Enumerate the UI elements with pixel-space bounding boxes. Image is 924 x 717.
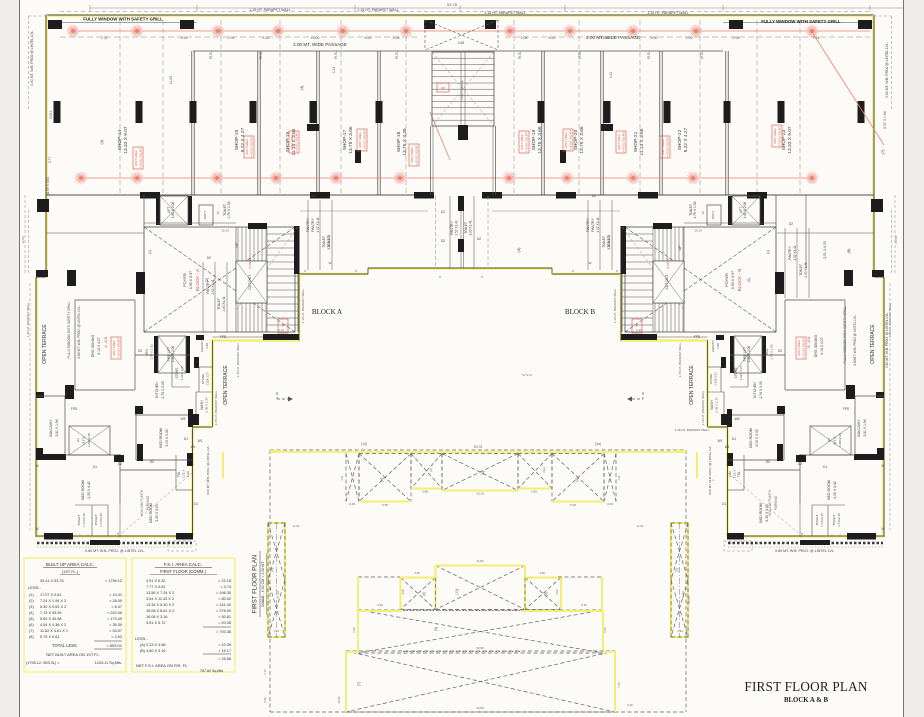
svg-text:OPEN TERRACE: OPEN TERRACE (689, 365, 695, 405)
svg-text:7.15: 7.15 (617, 682, 621, 688)
svg-text:1.60 X 2.06: 1.60 X 2.06 (747, 346, 751, 363)
svg-text:UNIT AREA: UNIT AREA (617, 134, 621, 150)
svg-text:1.79 X 1.52: 1.79 X 1.52 (693, 201, 697, 218)
svg-text:5.79 X 0.61: 5.79 X 0.61 (40, 635, 59, 639)
svg-text:FIRST FLOOR (COMM.): FIRST FLOOR (COMM.) (160, 569, 207, 574)
svg-text:= 6.47: = 6.47 (111, 605, 122, 609)
svg-text:= 4.74: = 4.74 (220, 585, 231, 589)
svg-text:1.15 HT. PARAPET WALL: 1.15 HT. PARAPET WALL (675, 428, 710, 432)
svg-text:1.11: 1.11 (609, 72, 613, 78)
svg-text:11.63: 11.63 (169, 76, 173, 84)
svg-text:10.19: 10.19 (221, 229, 229, 233)
svg-text:LIGHT SPACE: LIGHT SPACE (460, 80, 464, 100)
svg-text:OPEN TERRACE: OPEN TERRACE (223, 365, 229, 405)
svg-text:7.24: 7.24 (101, 36, 108, 40)
svg-text:2.74 X 3.35: 2.74 X 3.35 (161, 381, 165, 398)
svg-text:[7]: [7] (357, 682, 361, 686)
svg-text:13.04: 13.04 (21, 236, 25, 244)
svg-text:3.35 X 4.53: 3.35 X 4.53 (155, 504, 159, 521)
svg-text:V: V (439, 275, 441, 279)
svg-text:BLOCK A: BLOCK A (312, 308, 342, 316)
svg-text:= 10.41: = 10.41 (109, 593, 122, 597)
svg-text:BED ROOM: BED ROOM (749, 428, 753, 448)
svg-text:D2: D2 (118, 462, 122, 466)
svg-text:FPD: FPD (71, 407, 78, 411)
svg-text:W: W (35, 527, 38, 531)
svg-text:TOILET: TOILET (799, 264, 803, 276)
svg-text:= 93.02 SQ.MT: = 93.02 SQ.MT (621, 132, 625, 153)
svg-text:PANTRY: PANTRY (591, 218, 595, 232)
svg-text:1.22 X: 1.22 X (733, 470, 737, 479)
svg-text:F.S.I. AREA CALC.: F.S.I. AREA CALC. (164, 562, 203, 567)
svg-text:7.24 X 1.94 X 2: 7.24 X 1.94 X 2 (40, 599, 66, 603)
svg-text:TOTAL LESS: TOTAL LESS (52, 643, 77, 648)
svg-text:4.38: 4.38 (414, 571, 420, 575)
svg-text:53.78: 53.78 (447, 2, 458, 7)
svg-text:3.05 X 3.35: 3.05 X 3.35 (165, 429, 169, 446)
svg-text:2.13: 2.13 (278, 328, 284, 332)
svg-text:[9]: [9] (675, 568, 679, 572)
svg-text:9.30: 9.30 (263, 697, 267, 703)
svg-text:A -101: A -101 (103, 335, 108, 347)
svg-text:TOI.: TOI. (177, 471, 181, 477)
svg-text:[5]: [5] (481, 471, 485, 475)
svg-text:D1: D1 (722, 502, 726, 506)
svg-text:(1ST FL.): (1ST FL.) (62, 570, 79, 574)
svg-text:HOLLOW PLINTH: HOLLOW PLINTH (768, 489, 772, 516)
svg-text:D2: D2 (789, 222, 793, 226)
svg-text:1.11: 1.11 (332, 67, 336, 73)
svg-text:= 53.57: = 53.57 (109, 629, 122, 633)
svg-text:TOILET: TOILET (607, 236, 611, 248)
svg-text:BALCONY: BALCONY (857, 419, 861, 437)
svg-text:1.15 HT. PARAPET WALL: 1.15 HT. PARAPET WALL (678, 342, 682, 377)
svg-text:(3): (3) (99, 139, 104, 145)
svg-text:3.51 X 4.05: 3.51 X 4.05 (823, 241, 827, 258)
svg-text:O.T.S.: O.T.S. (82, 435, 86, 444)
svg-text:1.15 HT. PARAPET WALL: 1.15 HT. PARAPET WALL (236, 342, 240, 377)
svg-text:= 50.81: = 50.81 (218, 615, 231, 619)
svg-text:= 1796.12: = 1796.12 (105, 579, 122, 583)
svg-text:1.71X2.15: 1.71X2.15 (99, 513, 103, 527)
svg-text:PANTRY: PANTRY (306, 218, 310, 232)
svg-text:1.52 X1.41: 1.52 X1.41 (316, 217, 320, 233)
svg-text:11.62: 11.62 (637, 524, 644, 528)
svg-text:= 553.01: = 553.01 (106, 643, 122, 648)
svg-text:2.02: 2.02 (186, 471, 190, 477)
svg-text:1.15 HT. PARAPET WALL: 1.15 HT. PARAPET WALL (301, 288, 305, 323)
svg-text:SCALE : 1.00 CM = 2.00 MT.: SCALE : 1.00 CM = 2.00 MT. (261, 561, 265, 607)
svg-text:1.60: 1.60 (205, 343, 209, 349)
svg-text:1.52 X1.41: 1.52 X1.41 (211, 279, 215, 295)
svg-text:UNIT AREA: UNIT AREA (245, 139, 249, 155)
svg-text:[2]: [2] (270, 568, 274, 572)
svg-text:STORE: STORE (734, 368, 738, 379)
svg-text:(2): (2) (29, 599, 34, 603)
svg-text:BLOCK - B: BLOCK - B (737, 269, 742, 292)
svg-text:0.60 MT. W.B. PROJ. @ LINTEL: 0.60 MT. W.B. PROJ. @ LINTEL LVL. (85, 549, 145, 553)
svg-text:D2: D2 (441, 210, 445, 214)
svg-text:= 93.02 SQ.MT: = 93.02 SQ.MT (524, 132, 528, 153)
svg-text:UP: UP (678, 245, 682, 251)
svg-text:5.30: 5.30 (377, 603, 383, 607)
svg-text:1.94: 1.94 (677, 629, 683, 633)
svg-text:V: V (304, 269, 306, 273)
svg-text:3.89: 3.89 (531, 490, 537, 494)
svg-text:4.55: 4.55 (458, 41, 465, 45)
svg-text:(8): (8) (29, 635, 34, 639)
svg-text:5.30: 5.30 (651, 36, 658, 40)
svg-text:0.60 MT. W.B. PROJ. @ LINTEL L: 0.60 MT. W.B. PROJ. @ LINTEL LVL. (885, 312, 889, 368)
svg-text:15.39: 15.39 (601, 36, 610, 40)
svg-text:UNIT AREA: UNIT AREA (520, 134, 524, 150)
svg-text:1.68X2.48: 1.68X2.48 (838, 433, 842, 447)
svg-text:0.80 MT. W.B. PROJ. @ LINTEL: 0.80 MT. W.B. PROJ. @ LINTEL LVL. (775, 549, 835, 553)
svg-text:1243.11 Sq.Mts.: 1243.11 Sq.Mts. (95, 661, 122, 665)
svg-text:(1.36): (1.36) (349, 502, 356, 506)
svg-text:WASH: WASH (200, 400, 204, 410)
svg-text:B MVCC: B MVCC (666, 258, 670, 269)
svg-text:11.13 X 3.66: 11.13 X 3.66 (639, 128, 645, 155)
svg-text:7.24: 7.24 (813, 36, 820, 40)
svg-text:33.41 X 53.76: 33.41 X 53.76 (40, 579, 64, 583)
svg-text:[1a]: [1a] (361, 442, 367, 446)
svg-text:1.60: 1.60 (716, 343, 720, 349)
svg-text:13.56 X 7.24 X 2: 13.56 X 7.24 X 2 (146, 591, 174, 595)
svg-text:NET F.S.I. AREA ON FIR. FL.: NET F.S.I. AREA ON FIR. FL. (136, 663, 188, 668)
svg-text:OPEN TERRACE: OPEN TERRACE (42, 324, 48, 364)
svg-text:3.05 X 3.35: 3.05 X 3.35 (755, 429, 759, 446)
svg-text:1.22 X: 1.22 X (182, 470, 186, 479)
svg-text:D1: D1 (194, 502, 198, 506)
svg-text:[10]: [10] (455, 589, 459, 595)
svg-text:(4): (4) (29, 611, 34, 615)
svg-text:UNIT AREA: UNIT AREA (358, 132, 362, 148)
svg-text:1.94: 1.94 (273, 629, 279, 633)
svg-text:PANTRY: PANTRY (788, 246, 792, 260)
svg-text:LESS:-: LESS:- (135, 636, 148, 641)
svg-text:PANTRY: PANTRY (206, 280, 210, 294)
svg-text:9.30: 9.30 (627, 703, 633, 707)
svg-text:WASH: WASH (710, 400, 714, 410)
svg-text:1.71X2.15: 1.71X2.15 (837, 513, 841, 527)
svg-text:= 15.17: = 15.17 (218, 649, 231, 653)
svg-text:SHOP-15: SHOP-15 (234, 129, 240, 150)
svg-text:(4): (4) (299, 85, 304, 91)
svg-text:1.15 HT. PARAPET WALL: 1.15 HT. PARAPET WALL (613, 288, 617, 323)
svg-text:3.35 X 4.42: 3.35 X 4.42 (833, 481, 837, 498)
svg-text:6.53: 6.53 (365, 36, 372, 40)
svg-text:CUT OUT.: CUT OUT. (248, 274, 252, 290)
svg-text:(B) 4.80 X 3.16: (B) 4.80 X 3.16 (140, 649, 166, 653)
svg-text:(1): (1) (29, 593, 34, 597)
svg-text:(C): (C) (747, 278, 751, 283)
svg-text:7.13: 7.13 (263, 669, 267, 675)
svg-text:FIRST FLOOR PLAN: FIRST FLOOR PLAN (744, 679, 867, 694)
svg-text:SHOP-17: SHOP-17 (342, 129, 348, 150)
svg-text:D2: D2 (477, 237, 481, 241)
svg-text:(A) 2.23 X 4.66: (A) 2.23 X 4.66 (140, 643, 166, 647)
svg-text:FOYER: FOYER (182, 273, 187, 287)
svg-text:UNIT AREA: UNIT AREA (134, 150, 138, 166)
svg-text:W: W (329, 261, 332, 265)
svg-text:2.00 MT. WIDE PASSAGE: 2.00 MT. WIDE PASSAGE (586, 35, 640, 40)
svg-text:FPD: FPD (220, 335, 227, 339)
svg-text:R.S.: R.S. (647, 51, 651, 58)
svg-text:4.04 X 4.38 X 2: 4.04 X 4.38 X 2 (40, 623, 66, 627)
svg-text:10.10: 10.10 (476, 492, 484, 496)
svg-text:(4): (4) (516, 247, 521, 253)
svg-text:UNIT AREA: UNIT AREA (112, 340, 116, 356)
svg-text:D2: D2 (138, 349, 142, 353)
svg-text:FPD: FPD (843, 407, 850, 411)
svg-text:W3: W3 (181, 417, 186, 421)
svg-text:1.71X2.15: 1.71X2.15 (82, 513, 86, 527)
svg-text:11.95 X 0.61: 11.95 X 0.61 (46, 177, 50, 195)
svg-text:= 93.02 SQ.MT: = 93.02 SQ.MT (116, 338, 120, 359)
svg-text:FULLY WINDOW WITH SAFETY GRILL: FULLY WINDOW WITH SAFETY GRILL (83, 17, 163, 22)
svg-text:1.79 X 1.52: 1.79 X 1.52 (150, 344, 154, 360)
svg-text:VES.: VES. (765, 348, 769, 355)
svg-text:4.08: 4.08 (401, 589, 405, 595)
svg-text:(5): (5) (29, 617, 34, 621)
svg-text:5.66: 5.66 (352, 627, 356, 633)
svg-text:O.T.S.: O.T.S. (833, 435, 837, 444)
svg-text:xx: xx (79, 533, 83, 537)
svg-text:D2: D2 (592, 194, 596, 198)
svg-text:[4]: [4] (575, 478, 579, 482)
svg-text:BED ROOM: BED ROOM (81, 480, 85, 500)
svg-text:TOILET: TOILET (689, 204, 693, 216)
svg-text:= 93.02 SQ.MT: = 93.02 SQ.MT (362, 130, 366, 151)
svg-text:PANTRY: PANTRY (586, 218, 590, 232)
svg-text:13.33 X 9.07: 13.33 X 9.07 (787, 126, 793, 154)
svg-text:6.90 X 6.97: 6.90 X 6.97 (189, 271, 193, 289)
svg-text:TOILET: TOILET (464, 222, 468, 234)
svg-text:= 196.35: = 196.35 (216, 591, 231, 595)
svg-text:(1.26): (1.26) (607, 502, 614, 506)
svg-text:[3a]: [3a] (595, 442, 601, 446)
svg-text:= 3.53: = 3.53 (111, 635, 122, 639)
svg-text:W1: W1 (198, 439, 203, 443)
svg-text:UNIT AREA: UNIT AREA (564, 132, 568, 148)
svg-text:(F): (F) (827, 438, 831, 442)
svg-text:11.62: 11.62 (293, 524, 300, 528)
svg-text:1.22X 1.37: 1.22X 1.37 (180, 365, 184, 380)
svg-text:PANTRY: PANTRY (450, 221, 454, 235)
svg-text:= 242.06: = 242.06 (107, 611, 122, 615)
svg-text:3.81 X 1.94: 3.81 X 1.94 (863, 419, 867, 436)
svg-text:= 173.49: = 173.49 (107, 617, 122, 621)
svg-text:W1: W1 (718, 439, 723, 443)
svg-text:3.51 X 5.72: 3.51 X 5.72 (146, 621, 165, 625)
svg-text:STORE: STORE (709, 374, 713, 384)
svg-text:11.82: 11.82 (476, 559, 484, 563)
svg-text:[6]: [6] (434, 627, 438, 631)
svg-text:-13.59-: -13.59- (894, 235, 898, 245)
svg-text:HOLLOW PLINTH: HOLLOW PLINTH (140, 489, 144, 516)
svg-text:9.14 X 4.27: 9.14 X 4.27 (820, 337, 824, 354)
svg-text:6.55: 6.55 (382, 503, 388, 507)
svg-text:2.36 X 1.37: 2.36 X 1.37 (715, 397, 719, 413)
svg-text:D2: D2 (312, 194, 316, 198)
svg-text:= 141.40: = 141.40 (216, 603, 231, 607)
svg-text:PARKING: PARKING (146, 495, 150, 510)
svg-text:FULLY WINDOW WITH SAFETY GRILL: FULLY WINDOW WITH SAFETY GRILL (67, 301, 71, 358)
svg-text:767.82 Sq.Mts: 767.82 Sq.Mts (200, 669, 223, 673)
svg-text:= 20.08: = 20.08 (218, 621, 231, 625)
svg-text:(3): (3) (429, 468, 433, 472)
svg-text:4.38: 4.38 (539, 571, 545, 575)
svg-text:UNIT AREA: UNIT AREA (773, 128, 777, 144)
svg-text:1.15 HT. PARAPET WALL: 1.15 HT. PARAPET WALL (26, 302, 30, 337)
svg-text:TOILET: TOILET (602, 236, 606, 248)
svg-text:1.60 X 2.06: 1.60 X 2.06 (171, 346, 175, 363)
svg-text:2.36 X 1.37: 2.36 X 1.37 (205, 397, 209, 413)
svg-text:(3)DUCT: (3)DUCT (200, 340, 204, 352)
svg-text:= 35.39: = 35.39 (109, 623, 122, 627)
svg-text:= 93.02 SQ.MT: = 93.02 SQ.MT (568, 130, 572, 151)
svg-text:2.54: 2.54 (181, 36, 188, 40)
svg-text:UNIT AREA: UNIT AREA (290, 134, 294, 150)
svg-text:FPD: FPD (694, 335, 701, 339)
svg-text:FIRST FLOOR PLAN: FIRST FLOOR PLAN (252, 555, 259, 614)
svg-text:5.60 X 30.98: 5.60 X 30.98 (40, 617, 62, 621)
svg-text:16.08 X 3.16: 16.08 X 3.16 (146, 615, 168, 619)
svg-text:1.79 X 1.52: 1.79 X 1.52 (227, 201, 231, 218)
svg-text:~~~: ~~~ (522, 373, 533, 379)
svg-text:xx: xx (839, 533, 843, 537)
svg-text:BLOCK - A: BLOCK - A (195, 268, 200, 291)
svg-text:17.44: 17.44 (681, 591, 685, 599)
svg-text:BALCONY: BALCONY (49, 419, 53, 437)
svg-text:2.54: 2.54 (733, 36, 740, 40)
svg-text:3.54 X 11.43 X 2: 3.54 X 11.43 X 2 (146, 597, 174, 601)
svg-text:13.75 X 3.39: 13.75 X 3.39 (402, 128, 408, 156)
svg-text:1.90 X1.41: 1.90 X1.41 (222, 296, 226, 312)
svg-text:xx: xx (87, 533, 91, 537)
svg-text:1.22X 1.37: 1.22X 1.37 (739, 365, 743, 380)
svg-text:UNIT AREA: UNIT AREA (410, 147, 414, 163)
svg-text:2.77: 2.77 (48, 157, 52, 163)
svg-text:= 93.02 SQ.MT: = 93.02 SQ.MT (294, 132, 298, 153)
svg-text:5.50: 5.50 (603, 627, 607, 633)
svg-text:53.78: 53.78 (474, 445, 483, 449)
svg-text:R.S.: R.S. (578, 51, 582, 58)
svg-text:0.60 MT. W.B. PROJ @ LINTEL LV: 0.60 MT. W.B. PROJ @ LINTEL LVL. (30, 30, 34, 86)
svg-text:W: W (881, 527, 884, 531)
svg-text:1.71X2.15: 1.71X2.15 (820, 513, 824, 527)
svg-text:BUILT UP AREA CALC.: BUILT UP AREA CALC. (46, 562, 94, 567)
svg-text:9.14 X 4.27: 9.14 X 4.27 (97, 337, 101, 354)
svg-text:= 93.02 SQ.MT: = 93.02 SQ.MT (777, 126, 781, 147)
svg-text:0.60 MT. W.B. PROJ. @ LINTEL L: 0.60 MT. W.B. PROJ. @ LINTEL LVL. (206, 445, 210, 495)
svg-text:UP: UP (235, 242, 239, 248)
svg-text:R.S.: R.S. (259, 51, 263, 58)
svg-text:2.00 MT. WIDE PASSAGE: 2.00 MT. WIDE PASSAGE (293, 42, 347, 47)
svg-text:1.52 X1.41: 1.52 X1.41 (596, 217, 600, 233)
svg-text:PARKING: PARKING (774, 495, 778, 510)
svg-text:W1: W1 (725, 445, 730, 449)
svg-text:1.15 HT. PARAPET WALL: 1.15 HT. PARAPET WALL (701, 390, 705, 425)
svg-text:= 93.02 SQ.MT: = 93.02 SQ.MT (665, 137, 669, 158)
svg-text:2.03: 2.03 (228, 36, 235, 40)
svg-text:16.08 X 8.61 X 2: 16.08 X 8.61 X 2 (146, 609, 174, 613)
svg-text:TOILET: TOILET (832, 515, 836, 526)
svg-text:R.S.: R.S. (700, 51, 704, 58)
svg-text:3.35 X 4.42: 3.35 X 4.42 (87, 481, 91, 498)
svg-text:= 93.02 SQ.MT: = 93.02 SQ.MT (249, 137, 253, 158)
svg-text:11.62 X 4.61 X 1: 11.62 X 4.61 X 1 (40, 629, 68, 633)
svg-text:TOILET: TOILET (322, 236, 326, 248)
svg-text:FOYER: FOYER (724, 273, 729, 287)
svg-text:1.90 X1.41: 1.90 X1.41 (469, 220, 473, 236)
svg-text:DRG./DINING: DRG./DINING (91, 335, 95, 358)
svg-text:1.80 X 2.06: 1.80 X 2.06 (171, 202, 175, 219)
svg-text:= 10.39: = 10.39 (218, 643, 231, 647)
svg-text:30.98: 30.98 (476, 646, 484, 650)
svg-text:= 80.92: = 80.92 (218, 597, 231, 601)
svg-text:3.81 X 1.94: 3.81 X 1.94 (55, 419, 59, 436)
svg-text:(1796.12- 553.01) =: (1796.12- 553.01) = (26, 661, 60, 665)
svg-text:= 93.02 SQ.MT: = 93.02 SQ.MT (414, 145, 418, 166)
svg-text:SHOP-20: SHOP-20 (573, 129, 579, 150)
svg-text:32.86: 32.86 (687, 596, 691, 603)
svg-text:DRG./DINING: DRG./DINING (814, 335, 818, 358)
svg-text:R.S.: R.S. (334, 51, 338, 58)
svg-text:UNIT AREA: UNIT AREA (661, 139, 665, 155)
svg-text:(7): (7) (880, 149, 885, 155)
svg-text:W3: W3 (735, 417, 740, 421)
svg-text:10.19: 10.19 (694, 229, 702, 233)
svg-text:3.51 X 6.32: 3.51 X 6.32 (146, 579, 165, 583)
svg-text:D1: D1 (732, 437, 736, 441)
svg-text:R.S.: R.S. (209, 51, 213, 58)
svg-text:(7): (7) (29, 629, 34, 633)
svg-text:= 276.90: = 276.90 (216, 609, 231, 613)
svg-text:xx: xx (206, 478, 210, 482)
svg-text:6.90 X 6.97: 6.90 X 6.97 (731, 271, 735, 289)
svg-text:D1: D1 (93, 465, 97, 469)
svg-text:2.74 X 3.35: 2.74 X 3.35 (759, 381, 763, 398)
svg-text:13.04: 13.04 (49, 111, 53, 119)
svg-text:1.22X 1.37: 1.22X 1.37 (206, 372, 210, 386)
svg-text:1.52 X1.41: 1.52 X1.41 (793, 245, 797, 261)
svg-text:2.13: 2.13 (636, 328, 642, 332)
svg-text:1.79 X 1.52: 1.79 X 1.52 (770, 344, 774, 360)
svg-text:6.53: 6.53 (549, 36, 556, 40)
svg-text:17.07 X 0.61: 17.07 X 0.61 (40, 593, 62, 597)
svg-text:D1: D1 (184, 437, 188, 441)
svg-text:DUCT: DUCT (711, 211, 715, 219)
svg-text:1.80 X 2.06: 1.80 X 2.06 (743, 202, 747, 219)
svg-text:DUCT: DUCT (203, 211, 207, 219)
svg-text:R.S.: R.S. (518, 51, 522, 58)
svg-text:[4]: [4] (380, 478, 384, 482)
svg-text:TOI.: TOI. (737, 471, 741, 477)
svg-text:TOILET: TOILET (815, 515, 819, 526)
svg-text:(8): (8) (846, 248, 851, 254)
svg-text:(F): (F) (76, 438, 80, 442)
svg-text:5.30: 5.30 (581, 603, 587, 607)
svg-text:1.15 HT. PARAPET WALL: 1.15 HT. PARAPET WALL (214, 390, 218, 425)
svg-text:= 22.18: = 22.18 (218, 579, 231, 583)
svg-text:D1: D1 (823, 465, 827, 469)
svg-text:UP: UP (441, 86, 445, 90)
svg-text:6.05: 6.05 (570, 503, 576, 507)
svg-text:BLOCK A & B: BLOCK A & B (784, 697, 828, 704)
svg-text:D2: D2 (207, 256, 211, 260)
